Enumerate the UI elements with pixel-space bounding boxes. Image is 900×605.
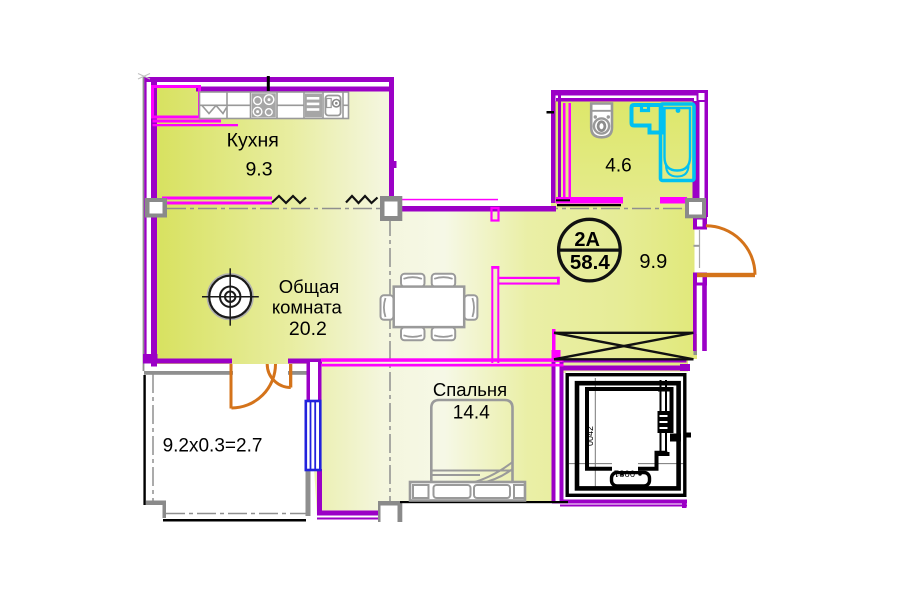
svg-text:9.2x0.3=2.7: 9.2x0.3=2.7 — [163, 436, 263, 457]
svg-text:Кухня: Кухня — [227, 130, 279, 152]
svg-text:14.4: 14.4 — [453, 403, 490, 424]
svg-text:Общая: Общая — [279, 276, 340, 297]
svg-text:9.9: 9.9 — [639, 251, 667, 273]
svg-text:0042: 0042 — [585, 426, 595, 446]
svg-text:4.6: 4.6 — [605, 156, 631, 177]
svg-text:58.4: 58.4 — [570, 251, 610, 274]
svg-text:0081: 0081 — [614, 467, 635, 478]
svg-text:комната: комната — [272, 297, 343, 318]
svg-text:20.2: 20.2 — [289, 318, 327, 340]
svg-text:2А: 2А — [574, 229, 600, 251]
svg-text:Спальня: Спальня — [433, 379, 507, 400]
svg-text:9.3: 9.3 — [245, 159, 272, 181]
